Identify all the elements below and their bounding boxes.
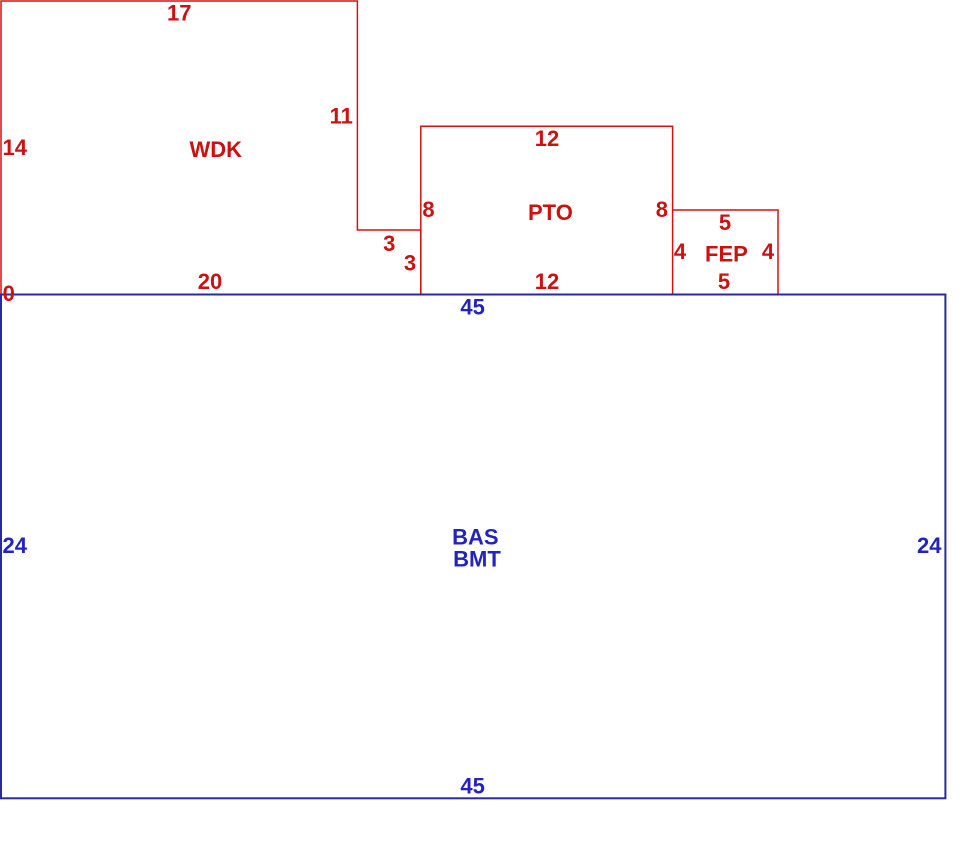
svg-text:FEP: FEP (705, 242, 748, 267)
svg-text:3: 3 (404, 251, 416, 276)
svg-text:8: 8 (422, 197, 434, 222)
svg-text:20: 20 (198, 269, 222, 294)
svg-text:BMT: BMT (453, 547, 501, 572)
svg-text:0: 0 (3, 281, 15, 306)
svg-text:11: 11 (330, 104, 353, 129)
svg-text:3: 3 (383, 231, 395, 256)
svg-text:4: 4 (674, 239, 687, 264)
svg-text:12: 12 (535, 269, 559, 294)
svg-text:WDK: WDK (190, 137, 243, 162)
svg-text:4: 4 (762, 239, 775, 264)
svg-text:24: 24 (2, 533, 27, 558)
svg-text:45: 45 (460, 774, 484, 799)
svg-text:45: 45 (460, 295, 484, 320)
svg-text:14: 14 (3, 135, 28, 160)
svg-text:5: 5 (718, 269, 730, 294)
svg-text:12: 12 (535, 126, 559, 151)
svg-text:24: 24 (917, 533, 942, 558)
svg-text:17: 17 (167, 1, 191, 26)
svg-text:8: 8 (656, 197, 668, 222)
svg-text:5: 5 (719, 210, 731, 235)
svg-text:PTO: PTO (528, 200, 573, 225)
